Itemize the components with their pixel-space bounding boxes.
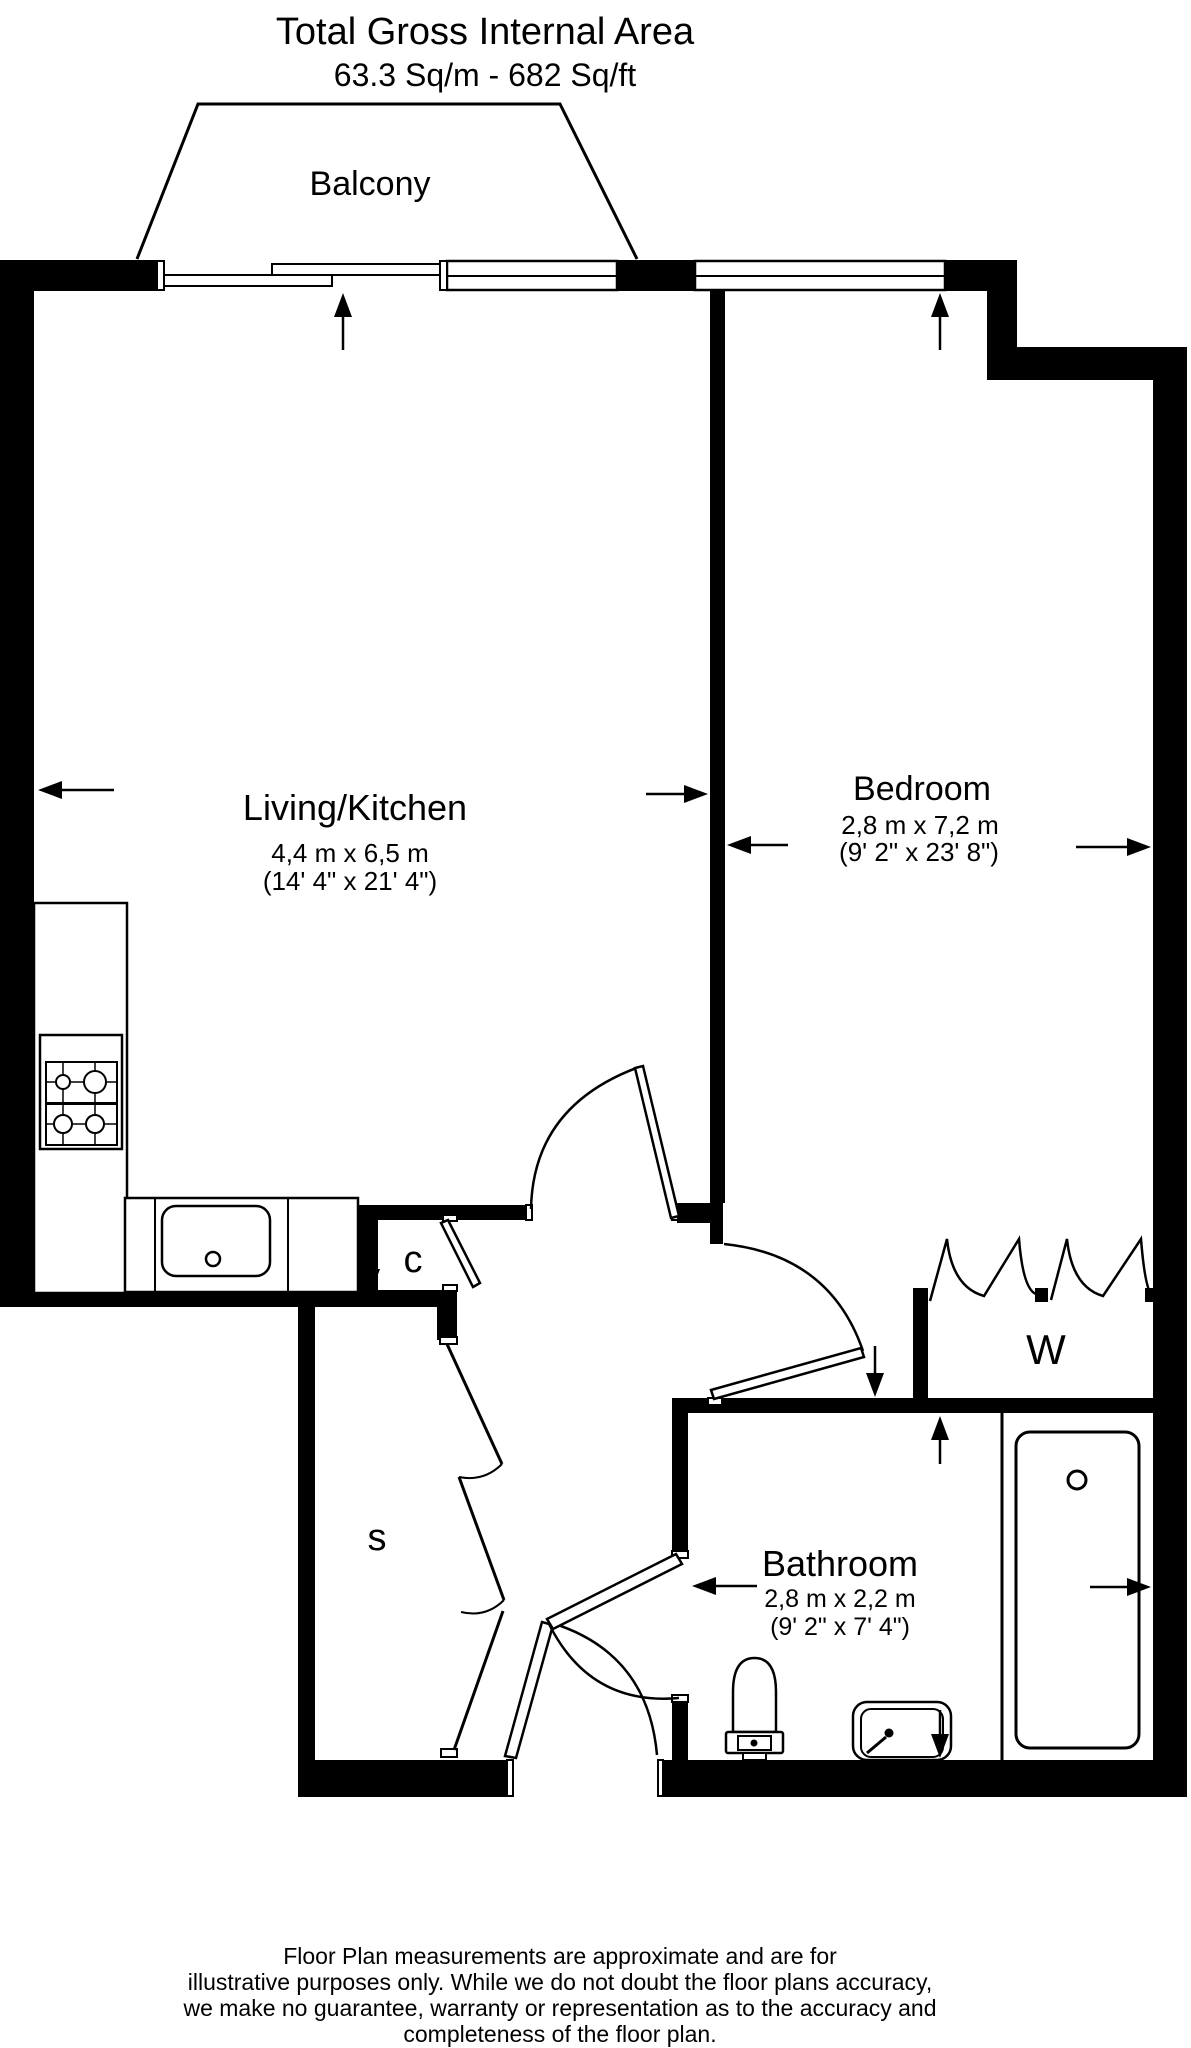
wall-segment <box>677 1203 723 1223</box>
wall-segment <box>662 1760 1187 1797</box>
bathroom-label: Bathroom <box>762 1543 918 1584</box>
bifold-door-arc <box>461 1600 504 1614</box>
bedroom-size-metric: 2,8 m x 7,2 m <box>841 810 999 840</box>
hob-burner <box>56 1075 70 1089</box>
wall-segment <box>672 1398 1153 1413</box>
floorplan-drawing: Total Gross Internal Area 63.3 Sq/m - 68… <box>0 0 1191 2048</box>
floorplan-page: Total Gross Internal Area 63.3 Sq/m - 68… <box>0 0 1191 2048</box>
disclaimer-line: Floor Plan measurements are approximate … <box>283 1943 837 1969</box>
wall-segment <box>1153 347 1187 1797</box>
door-jamb <box>443 1285 457 1291</box>
store-label: s <box>368 1517 387 1559</box>
door-jamb <box>507 1760 513 1796</box>
disclaimer-line: illustrative purposes only. While we do … <box>188 1969 932 1995</box>
hob-burner <box>84 1071 106 1093</box>
arrow-up <box>931 293 949 350</box>
bathroom-door-arc <box>549 1624 679 1699</box>
window-jamb <box>157 261 164 290</box>
walls <box>0 260 1187 1797</box>
page-subtitle-area: 63.3 Sq/m - 682 Sq/ft <box>334 57 637 93</box>
wall-segment <box>437 1307 457 1340</box>
wall-segment <box>0 260 157 291</box>
wall-segment <box>298 1307 315 1760</box>
bedroom-label: Bedroom <box>853 770 991 808</box>
arrow-left <box>727 836 788 854</box>
wall-segment <box>987 291 1017 380</box>
wall-segment <box>945 260 1017 291</box>
hob-burner <box>54 1115 72 1133</box>
measurement-arrows <box>38 293 1151 1758</box>
arrow-up <box>931 1416 949 1464</box>
bifold-door-leaf <box>459 1477 504 1600</box>
wall-segment <box>672 1700 688 1760</box>
bifold-door-arc <box>459 1464 502 1478</box>
windows <box>157 261 945 290</box>
window-jamb <box>440 261 447 290</box>
arrow-right <box>1076 838 1151 856</box>
cupboard-door-leaf <box>441 1220 480 1287</box>
arrow-right <box>646 785 708 803</box>
toilet-foot <box>743 1753 766 1760</box>
kitchen-fixtures <box>34 903 358 1293</box>
sink-drain <box>206 1252 220 1266</box>
bathroom-size-metric: 2,8 m x 2,2 m <box>764 1585 915 1613</box>
bathroom-size-imperial: (9' 2" x 7' 4") <box>770 1613 910 1641</box>
sliding-door-panel <box>272 264 440 275</box>
wall-segment <box>0 260 34 1307</box>
bathtub-drain <box>1068 1471 1086 1489</box>
sliding-door-panel <box>160 275 332 286</box>
door-jamb <box>440 1337 457 1344</box>
wardrobe-doors-right <box>1051 1239 1152 1300</box>
door-jamb <box>658 1760 663 1796</box>
wall-segment <box>913 1288 928 1398</box>
entry-door-leaf <box>505 1622 553 1758</box>
arrow-left <box>38 781 114 799</box>
arrow-down <box>866 1346 884 1397</box>
bedroom-door-arc <box>724 1244 863 1351</box>
wardrobe-doors-left <box>930 1239 1036 1301</box>
living-kitchen-size-metric: 4,4 m x 6,5 m <box>271 838 429 868</box>
living-door-arc <box>531 1067 639 1209</box>
page-title: Total Gross Internal Area <box>276 11 695 53</box>
arrow-up <box>334 293 352 350</box>
toilet-bowl <box>733 1658 776 1732</box>
wall-segment <box>710 1223 723 1244</box>
wall-segment <box>1035 1288 1048 1302</box>
wall-segment <box>710 291 725 1203</box>
living-kitchen-label: Living/Kitchen <box>243 787 467 828</box>
living-door-leaf <box>635 1066 679 1218</box>
disclaimer: Floor Plan measurements are approximate … <box>182 1943 936 2047</box>
title-block: Total Gross Internal Area 63.3 Sq/m - 68… <box>276 11 695 93</box>
arrow-left <box>692 1577 757 1595</box>
hob-burner <box>86 1115 104 1133</box>
bifold-door-leaf <box>454 1611 503 1750</box>
wardrobe-label: W <box>1026 1326 1066 1373</box>
basin-tap-dot <box>885 1729 894 1738</box>
balcony: Balcony <box>137 104 637 259</box>
toilet-dot <box>751 1740 758 1747</box>
basin-inner <box>861 1709 943 1757</box>
bedroom-size-imperial: (9' 2" x 23' 8") <box>839 837 999 867</box>
wall-segment <box>298 1760 507 1797</box>
wall-segment <box>672 1413 688 1558</box>
disclaimer-line: we make no guarantee, warranty or repres… <box>182 1995 936 2021</box>
entry-door-arc <box>552 1623 657 1755</box>
disclaimer-line: completeness of the floor plan. <box>403 2021 716 2047</box>
cupboard-label: c <box>404 1239 423 1281</box>
wall-segment <box>617 260 695 291</box>
balcony-label: Balcony <box>310 165 431 203</box>
bedroom-door-leaf <box>711 1348 864 1399</box>
bifold-door-leaf <box>447 1344 502 1464</box>
bathroom-door-leaf <box>547 1554 682 1629</box>
living-kitchen-size-imperial: (14' 4" x 21' 4") <box>263 866 437 896</box>
